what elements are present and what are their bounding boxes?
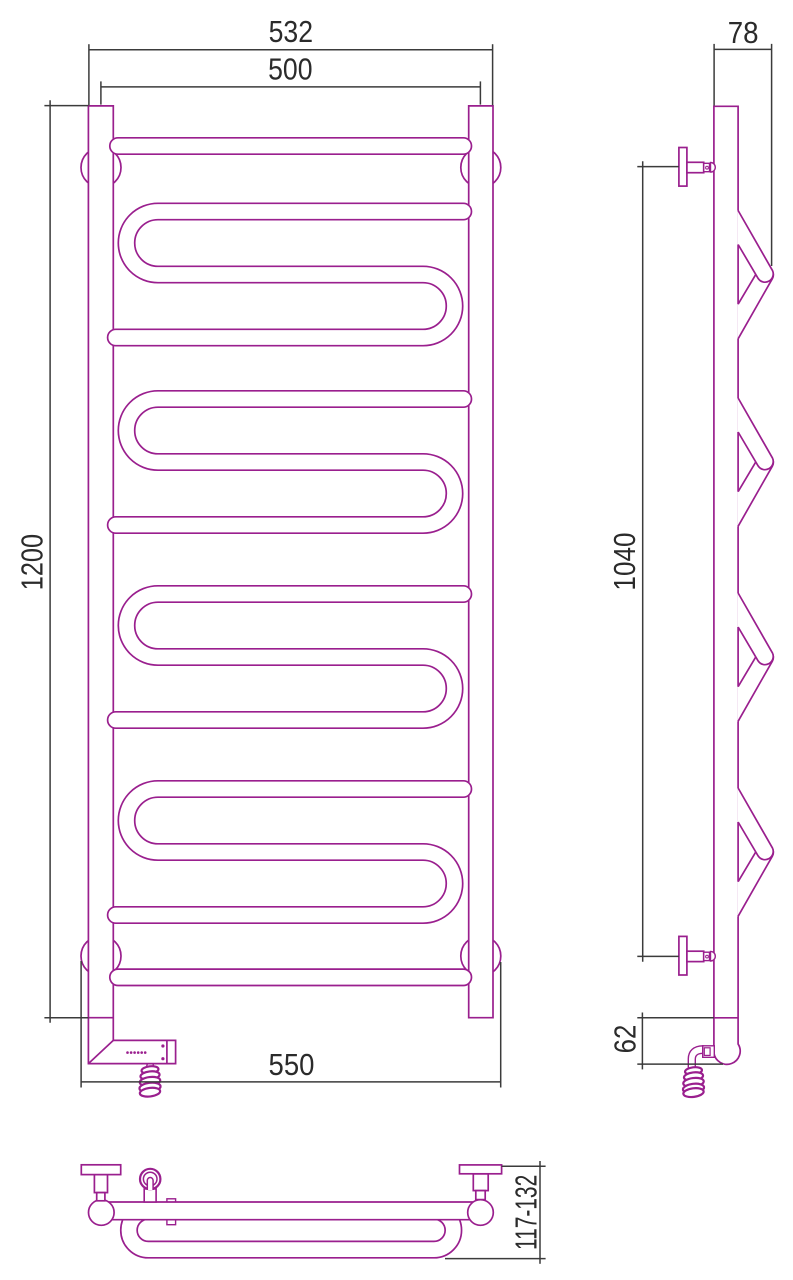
svg-text:1040: 1040 (607, 532, 642, 590)
svg-text:532: 532 (269, 14, 313, 49)
svg-text:500: 500 (268, 52, 312, 87)
svg-text:78: 78 (728, 15, 759, 50)
svg-text:117-132: 117-132 (508, 1175, 543, 1250)
svg-text:1200: 1200 (14, 534, 49, 590)
svg-text:550: 550 (269, 1047, 315, 1082)
svg-text:62: 62 (608, 1025, 643, 1054)
